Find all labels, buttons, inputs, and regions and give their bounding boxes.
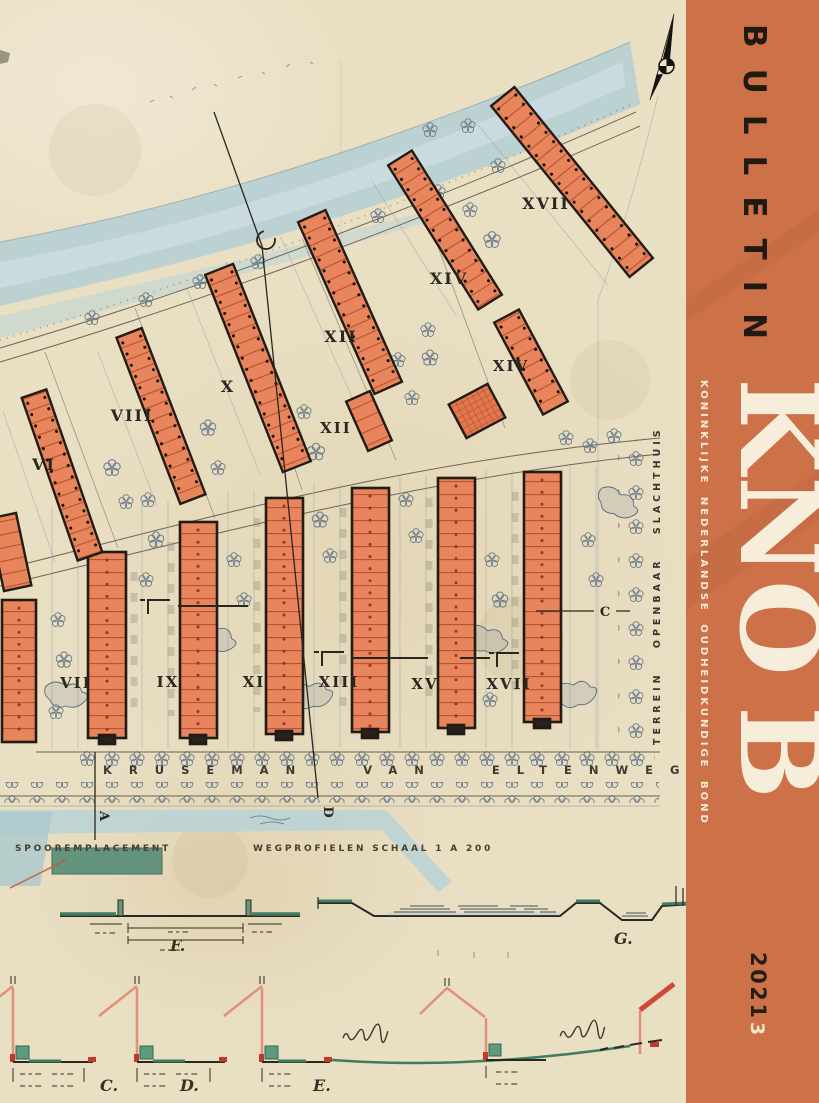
block-label: XII <box>320 419 352 437</box>
issue-number: 3 <box>746 1022 768 1035</box>
block-label: XIV <box>430 269 468 288</box>
acronym-letter-b: B <box>724 706 819 799</box>
profile-label-g: G. <box>614 929 633 948</box>
block-label: XIII <box>319 673 360 691</box>
journal-cover: A D C VI VIII X XII XII XIV XIV XVII VII… <box>0 0 819 1103</box>
block-label: XII <box>324 327 357 346</box>
profile-label-f: F. <box>169 936 185 955</box>
section-letter-d: D <box>320 806 335 817</box>
block-label: VII <box>59 674 92 692</box>
acronym-letter-k: K <box>724 378 819 474</box>
section-letter-c: C <box>600 605 610 620</box>
street-name-label: KRUSEMAN VAN ELTENWEG <box>103 763 696 777</box>
journal-title: BULLETIN <box>736 24 772 360</box>
house-profiles <box>0 976 674 1086</box>
block-label: X <box>221 377 235 396</box>
site-plan-drawing: A D C VI VIII X XII XII XIV XIV XVII VII… <box>0 0 700 1103</box>
corner-smudge <box>0 50 10 64</box>
house-profile-label-d: D. <box>179 1076 199 1095</box>
block-label: XVII <box>522 194 570 213</box>
acronym-letter-o: O <box>724 580 819 676</box>
terrain-label: TERREIN OPENBAAR SLACHTHUIS <box>652 426 663 745</box>
north-arrow-icon <box>650 14 674 100</box>
street-tree-row-lower <box>4 782 659 803</box>
section-letter-a: A <box>96 810 111 822</box>
block-label: XV <box>411 675 438 693</box>
profile-canal-section <box>318 886 692 958</box>
top-handwriting-marks <box>150 62 313 102</box>
block-label: VIII <box>110 406 154 425</box>
acronym-letter-n: N <box>724 476 819 577</box>
organization-name: KONINKLIJKE NEDERLANDSE OUDHEIDKUNDIGE B… <box>698 380 709 826</box>
profiles-title: WEGPROFIELEN SCHAAL 1 A 200 <box>253 844 493 854</box>
block-label: XI <box>243 673 266 691</box>
block-label: IX <box>157 673 180 691</box>
house-profile-label-c: C. <box>100 1076 118 1095</box>
block-label: XIV <box>493 357 529 375</box>
issue-year: 2021 <box>746 952 770 1020</box>
house-profile-label-e: E. <box>312 1076 331 1095</box>
terrain-tree-strip <box>618 446 644 744</box>
railway-label: SPOOREMPLACEMENT <box>15 844 171 854</box>
block-label: XVII <box>486 675 531 693</box>
block-label: VI <box>31 455 56 474</box>
